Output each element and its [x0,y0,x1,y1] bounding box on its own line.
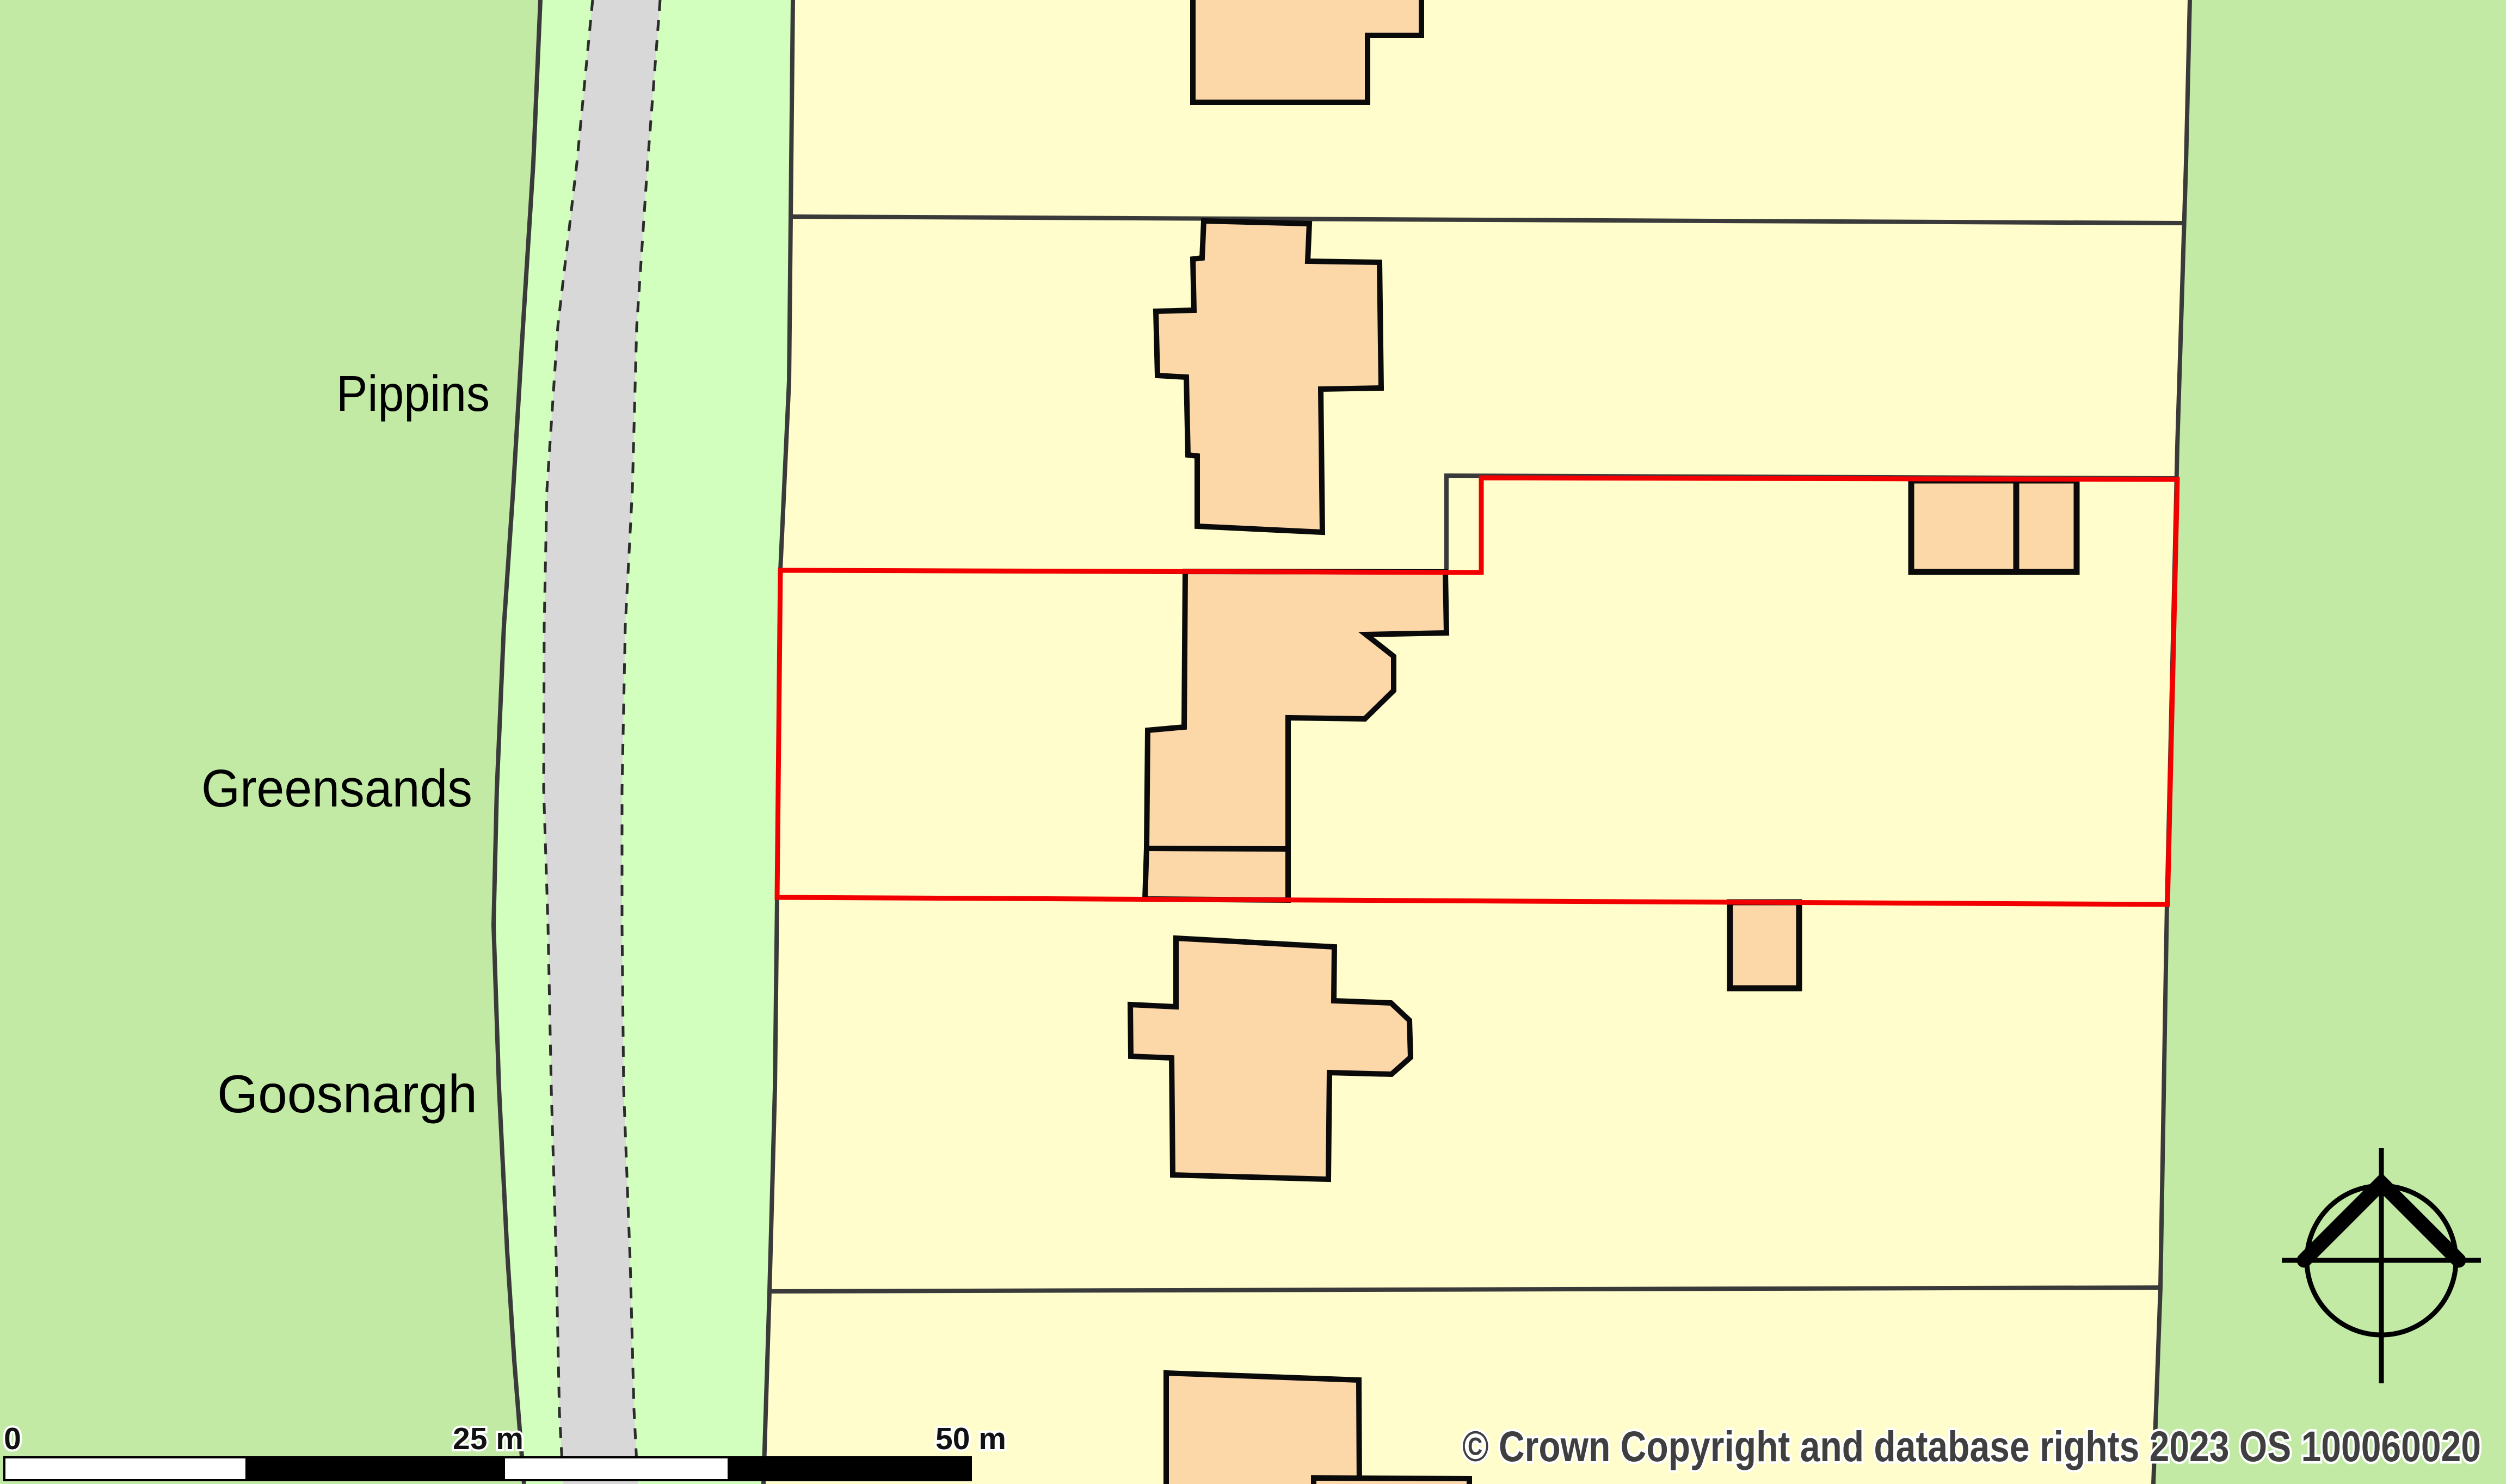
svg-text:Pippins: Pippins [336,365,490,422]
svg-text:50 m: 50 m [935,1421,1006,1456]
svg-text:© Crown Copyright and database: © Crown Copyright and database rights 20… [1462,1422,2481,1470]
svg-text:Goosnargh: Goosnargh [217,1064,477,1124]
svg-text:25 m: 25 m [453,1421,524,1456]
svg-text:Greensands: Greensands [201,759,472,818]
svg-text:0: 0 [4,1421,21,1456]
